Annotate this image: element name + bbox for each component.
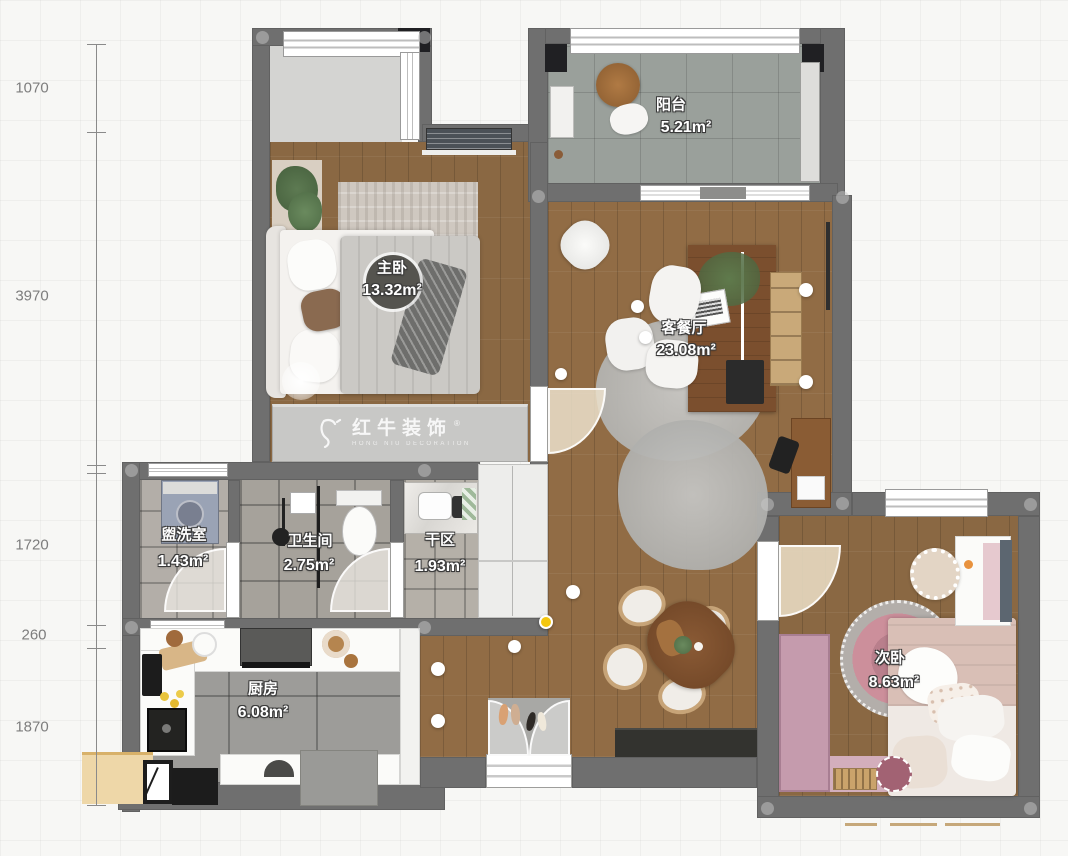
wall-joint: [418, 621, 431, 634]
tv-console: [615, 728, 757, 757]
label-living-area: 23.08m²: [656, 342, 716, 360]
balcony-pot: [554, 150, 563, 159]
wall-joint: [761, 802, 774, 815]
wall-joint: [125, 464, 138, 477]
pouf-pink: [876, 756, 912, 792]
book-shelf2: [833, 768, 877, 790]
balcony-door-mullion: [700, 187, 746, 199]
ac-shelf: [422, 150, 516, 155]
dimension-line: [96, 44, 97, 805]
bull-logo-icon: [318, 418, 344, 448]
dash-3: [945, 823, 1000, 826]
downlight: [631, 300, 644, 313]
wall-joint: [418, 31, 431, 44]
downlight: [431, 662, 445, 676]
dim-260: 260: [21, 627, 46, 644]
label-kitchen-name: 厨房: [248, 678, 278, 699]
washroom-window: [148, 463, 228, 477]
master-door-frame: [530, 386, 548, 462]
pier-balcony-left: [545, 44, 567, 72]
label-balcony-area: 5.21m²: [661, 119, 712, 137]
wall-living-bottom-left: [420, 757, 486, 788]
wall-bed2-top-left: [852, 492, 888, 516]
cooktop-edge: [242, 662, 310, 668]
downlight: [555, 368, 567, 380]
desk2-orange-dot: [964, 560, 973, 569]
label-bathroom-area: 2.75m²: [284, 557, 335, 575]
wall-joint: [836, 497, 849, 510]
label-master-name: 主卧: [377, 257, 407, 278]
downlight: [508, 640, 521, 653]
label-living-name: 客餐厅: [661, 317, 706, 338]
balcony-round-table: [596, 63, 640, 107]
dim-1720: 1720: [15, 537, 48, 554]
wall-living-bottom-right: [572, 757, 757, 788]
dim-1070: 1070: [15, 80, 48, 97]
downlight: [639, 331, 652, 344]
dimension-tick: [87, 625, 106, 626]
towel-green: [462, 488, 476, 520]
label-balcony-name: 阳台: [656, 94, 686, 115]
wall-joint: [761, 498, 774, 511]
hall-cabinet-shelf: [479, 560, 547, 562]
dining-plant: [674, 636, 692, 654]
wall-master-right: [530, 142, 548, 390]
floorplan-canvas: 1070 3970 1720 260 1870: [0, 0, 1068, 856]
lemon-2: [170, 699, 179, 708]
kitchen-side-wall: [400, 628, 420, 785]
shower-pipe: [282, 498, 285, 546]
nightstand-lamp-glow: [282, 362, 320, 400]
baseboard-dark: [826, 222, 830, 310]
coffee-machine: [142, 654, 162, 696]
dimension-tick: [87, 465, 106, 466]
wall-living-right: [832, 195, 852, 516]
label-bathroom-name: 卫生间: [287, 530, 332, 551]
hall-cabinet-divider: [512, 466, 513, 616]
closet-side-window: [400, 52, 420, 140]
hall-cabinet: [478, 464, 548, 618]
kitchen-mat: [300, 750, 378, 806]
shower-caddy: [290, 492, 316, 514]
label-dry-name: 干区: [425, 529, 455, 550]
label-master-area: 13.32m²: [362, 282, 422, 300]
balcony-window: [570, 28, 800, 54]
downlight: [566, 585, 580, 599]
bed2-window: [885, 489, 988, 517]
watermark-subtitle: HONG NIU DECORATION: [352, 441, 471, 447]
balcony-cabinet: [550, 86, 574, 138]
label-washroom-area: 1.43m²: [158, 553, 209, 571]
wood-plate: [344, 654, 358, 668]
dim-3970: 3970: [15, 288, 48, 305]
vanity-sink: [418, 492, 452, 520]
washroom-door-frame: [226, 542, 240, 618]
wood-rack: [322, 630, 350, 658]
dimension-tick: [87, 44, 106, 45]
watermark-title: 红牛装饰: [352, 419, 452, 438]
bowl-brown: [166, 630, 183, 647]
rattan-shelf: [770, 272, 802, 386]
dimension-tick: [87, 473, 106, 474]
bed2-door-frame: [757, 541, 779, 621]
balcony-floor: [548, 44, 820, 185]
wall-bed2-bottom: [757, 796, 1040, 818]
dash-1: [845, 823, 877, 826]
lemon-3: [176, 690, 184, 698]
pot-white: [192, 632, 217, 657]
toilet-tank: [336, 490, 382, 506]
cooktop: [240, 628, 312, 666]
label-dry-area: 1.93m²: [415, 558, 466, 576]
dim-1870: 1870: [15, 719, 48, 736]
washing-machine-top: [163, 482, 217, 494]
entry-threshold: [486, 754, 572, 788]
dimension-tick: [87, 648, 106, 649]
chair2-round: [910, 548, 960, 600]
wall-joint: [1024, 498, 1037, 511]
dash-2: [890, 823, 937, 826]
ac-unit: [426, 128, 512, 150]
yellow-marker[interactable]: [539, 615, 553, 629]
dimension-tick: [87, 132, 106, 133]
plant-leaf: [288, 192, 322, 232]
wall-joint: [532, 190, 545, 203]
appliance-black: [172, 768, 218, 805]
wall-joint: [125, 621, 138, 634]
label-bed2-area: 8.63m²: [869, 674, 920, 692]
label-bed2-name: 次卧: [875, 647, 905, 668]
tablet: [726, 360, 764, 404]
desk2-pad-pink: [983, 543, 1000, 620]
wall-bed2-right: [1018, 516, 1040, 818]
downlight: [799, 375, 813, 389]
wall-joint: [256, 31, 269, 44]
label-washroom-name: 盥洗室: [161, 524, 206, 545]
desk-paper: [797, 476, 825, 500]
bathroom-door-frame: [390, 542, 404, 618]
desk2-edge-gray: [1000, 540, 1012, 622]
label-kitchen-area: 6.08m²: [238, 704, 289, 722]
watermark-registered: ®: [454, 419, 460, 428]
wall-joint: [1024, 802, 1037, 815]
dining-cup: [694, 642, 703, 651]
wall-joint: [418, 464, 431, 477]
watermark: 红牛装饰 ® HONG NIU DECORATION: [318, 418, 471, 448]
balcony-side-panel: [800, 62, 820, 182]
downlight: [431, 714, 445, 728]
toilet-bowl: [342, 506, 377, 556]
downlight: [799, 283, 813, 297]
lemon-1: [160, 692, 169, 701]
kitchen-sink-drain: [162, 724, 171, 733]
dimension-tick: [87, 805, 106, 806]
closet-floor: [270, 46, 402, 142]
wardrobe-pink: [779, 634, 830, 792]
wall-joint: [836, 191, 849, 204]
